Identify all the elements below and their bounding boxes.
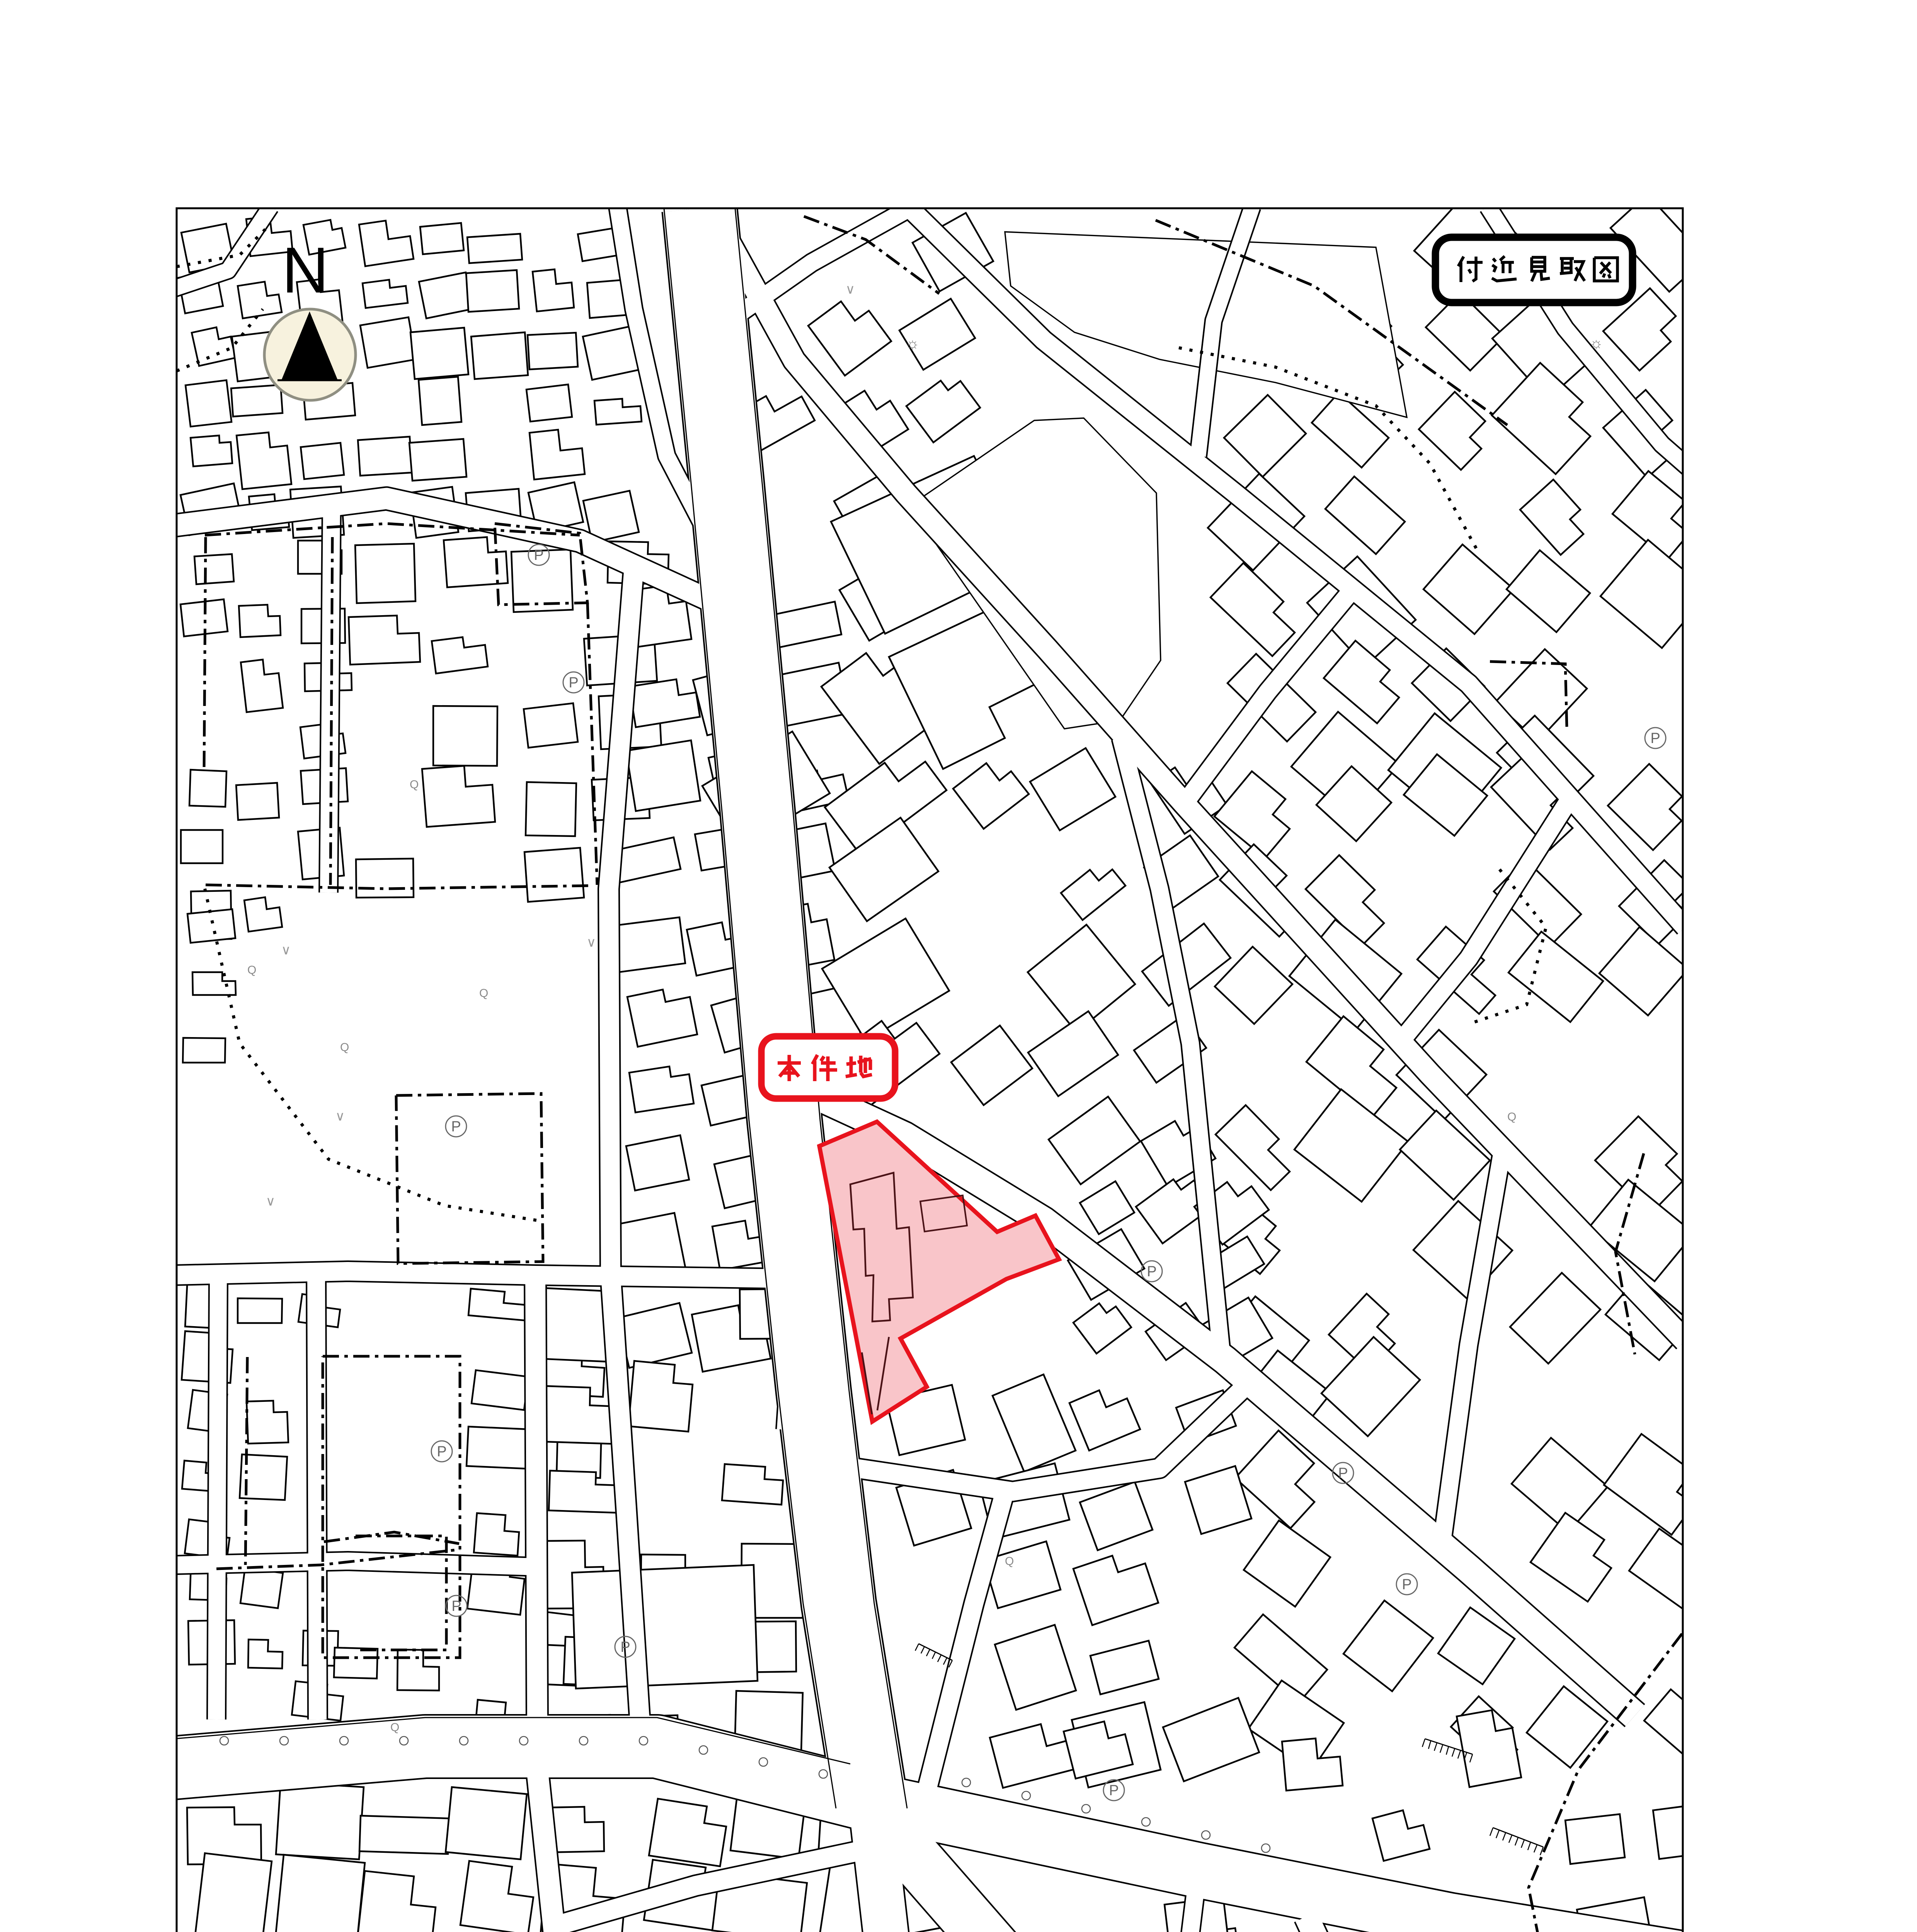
svg-text:Q: Q <box>247 964 256 976</box>
svg-text:∨: ∨ <box>587 935 596 950</box>
svg-text:P: P <box>451 1598 461 1614</box>
svg-text:P: P <box>534 547 543 563</box>
svg-text:P: P <box>1650 730 1660 747</box>
svg-text:∨: ∨ <box>335 1109 345 1124</box>
svg-text:☼: ☼ <box>906 335 920 352</box>
svg-text:∨: ∨ <box>846 282 855 297</box>
svg-text:Q: Q <box>1005 1555 1014 1568</box>
svg-text:P: P <box>1147 1264 1156 1280</box>
svg-text:P: P <box>451 1119 461 1135</box>
svg-text:Q: Q <box>479 987 488 1000</box>
svg-text:Q: Q <box>1507 1111 1516 1123</box>
svg-text:∨: ∨ <box>281 943 291 957</box>
svg-text:Q: Q <box>410 778 419 791</box>
svg-text:Q: Q <box>390 1721 399 1734</box>
svg-text:P: P <box>1402 1577 1411 1593</box>
svg-text:☼: ☼ <box>1589 335 1604 352</box>
svg-text:P: P <box>437 1444 446 1460</box>
svg-text:P: P <box>569 675 578 691</box>
svg-text:∨: ∨ <box>266 1194 276 1209</box>
svg-text:Q: Q <box>340 1041 349 1054</box>
svg-text:N: N <box>282 234 329 306</box>
svg-text:P: P <box>1109 1782 1119 1799</box>
svg-text:P: P <box>620 1639 630 1655</box>
svg-text:P: P <box>1338 1465 1348 1481</box>
